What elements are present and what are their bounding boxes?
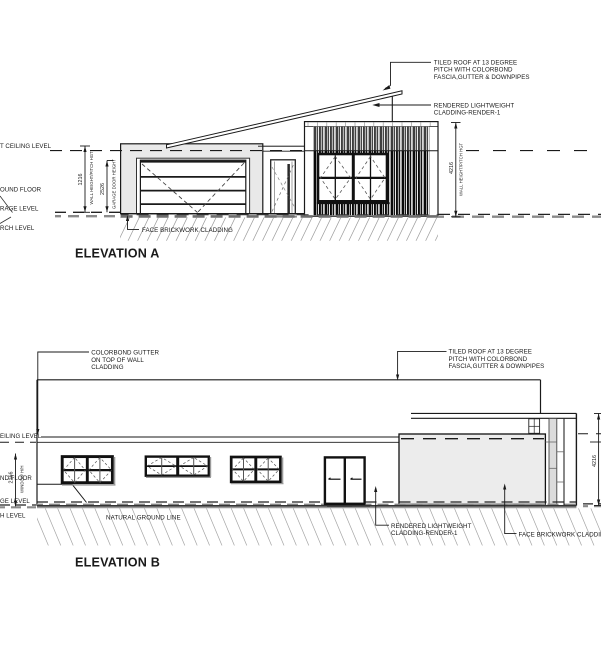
svg-text:TILED ROOF AT 13 DEGREE: TILED ROOF AT 13 DEGREE — [434, 59, 517, 66]
svg-text:ELEVATION B: ELEVATION B — [75, 556, 160, 570]
svg-text:WALL HEIGHT/PITCH HGT: WALL HEIGHT/PITCH HGT — [89, 151, 94, 205]
svg-text:OUND FLOOR: OUND FLOOR — [0, 187, 42, 194]
svg-text:WALL HEIGHT/PITCH HGT: WALL HEIGHT/PITCH HGT — [459, 142, 464, 196]
svg-text:WINDOW H/H: WINDOW H/H — [20, 466, 25, 493]
svg-text:RENDERED LIGHTWEIGHT: RENDERED LIGHTWEIGHT — [391, 523, 472, 530]
svg-text:PITCH WITH COLORBOND: PITCH WITH COLORBOND — [449, 356, 528, 363]
svg-text:4216: 4216 — [592, 455, 598, 467]
svg-text:2166: 2166 — [8, 472, 14, 484]
svg-text:EILING LEVEL: EILING LEVEL — [0, 433, 42, 440]
svg-text:1216: 1216 — [78, 174, 84, 186]
svg-text:COLORBOND GUTTER: COLORBOND GUTTER — [91, 350, 159, 357]
svg-text:4216: 4216 — [449, 162, 455, 174]
svg-text:CLADDING-RENDER-1: CLADDING-RENDER-1 — [434, 110, 501, 117]
svg-text:FASCIA,GUTTER & DOWNPIPES: FASCIA,GUTTER & DOWNPIPES — [434, 74, 530, 81]
svg-text:FASCIA,GUTTER & DOWNPIPES: FASCIA,GUTTER & DOWNPIPES — [449, 363, 545, 370]
svg-text:ND FLOOR: ND FLOOR — [0, 475, 32, 482]
svg-text:ELEVATION A: ELEVATION A — [75, 247, 160, 261]
svg-text:RAGE LEVEL: RAGE LEVEL — [0, 206, 39, 213]
svg-text:ON TOP OF WALL: ON TOP OF WALL — [91, 357, 144, 364]
svg-text:CLADDING: CLADDING — [91, 364, 124, 371]
svg-text:RENDERED LIGHTWEIGHT: RENDERED LIGHTWEIGHT — [434, 102, 515, 109]
svg-text:FACE BRICKWORK CLADDING: FACE BRICKWORK CLADDING — [519, 531, 601, 538]
svg-text:CLADDING-RENDER-1: CLADDING-RENDER-1 — [391, 530, 458, 537]
svg-text:NATURAL GROUND LINE: NATURAL GROUND LINE — [106, 514, 181, 521]
svg-text:T CEILING LEVEL: T CEILING LEVEL — [0, 143, 52, 150]
svg-text:2526: 2526 — [100, 183, 106, 195]
svg-text:GARAGE DOOR HEIGHT: GARAGE DOOR HEIGHT — [112, 159, 117, 209]
svg-text:RCH LEVEL: RCH LEVEL — [0, 225, 35, 232]
svg-text:PITCH WITH COLORBOND: PITCH WITH COLORBOND — [434, 67, 513, 74]
svg-text:TILED ROOF AT 13 DEGREE: TILED ROOF AT 13 DEGREE — [449, 349, 532, 356]
svg-text:H LEVEL: H LEVEL — [0, 513, 26, 520]
svg-text:FACE BRICKWORK CLADDING: FACE BRICKWORK CLADDING — [142, 227, 233, 234]
